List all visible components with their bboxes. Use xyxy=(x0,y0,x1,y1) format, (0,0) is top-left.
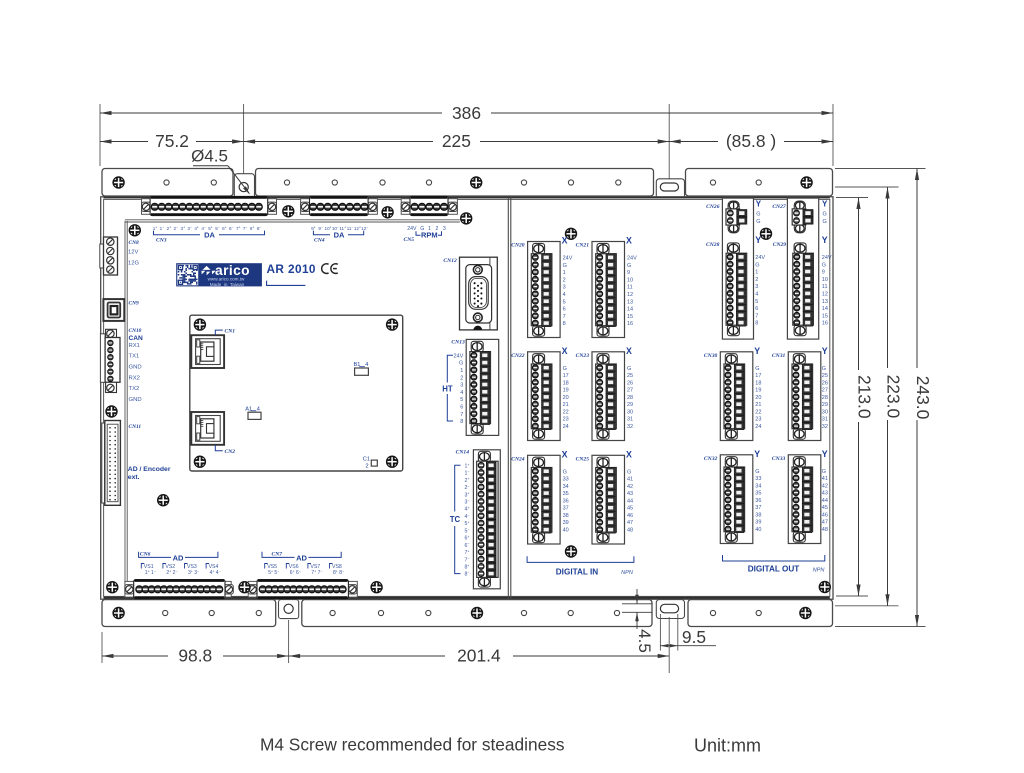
svg-text:CN12: CN12 xyxy=(443,258,457,264)
svg-text:39: 39 xyxy=(755,520,761,526)
svg-text:21: 21 xyxy=(755,402,761,408)
svg-text:G: G xyxy=(755,262,759,268)
svg-text:CN30: CN30 xyxy=(704,353,718,359)
svg-text:213.0: 213.0 xyxy=(855,375,875,419)
svg-text:DA: DA xyxy=(204,230,215,239)
svg-text:Y: Y xyxy=(822,346,828,356)
svg-text:B1: B1 xyxy=(354,362,361,368)
svg-text:CN5: CN5 xyxy=(404,237,415,243)
svg-text:7: 7 xyxy=(755,313,758,319)
svg-text:32: 32 xyxy=(627,424,633,430)
svg-text:C1: C1 xyxy=(363,456,370,462)
svg-text:2: 2 xyxy=(366,463,369,469)
svg-text:NPN: NPN xyxy=(621,570,634,576)
svg-text:26: 26 xyxy=(822,380,828,386)
svg-text:30: 30 xyxy=(822,409,828,415)
svg-text:Y: Y xyxy=(754,449,760,459)
svg-text:98.8: 98.8 xyxy=(178,646,212,666)
svg-text:17: 17 xyxy=(755,373,761,379)
svg-text:Y: Y xyxy=(755,235,761,245)
svg-text:225: 225 xyxy=(442,131,471,151)
svg-text:35: 35 xyxy=(755,491,761,497)
svg-text:43: 43 xyxy=(822,491,828,497)
svg-text:201.4: 201.4 xyxy=(457,646,501,666)
svg-text:GND: GND xyxy=(129,397,142,403)
svg-text:36: 36 xyxy=(755,498,761,504)
svg-text:15: 15 xyxy=(627,314,633,320)
svg-text:7: 7 xyxy=(563,314,566,320)
svg-text:31: 31 xyxy=(822,417,828,423)
svg-text:36: 36 xyxy=(563,498,569,504)
svg-text:22: 22 xyxy=(755,409,761,415)
svg-text:24: 24 xyxy=(563,424,569,430)
svg-text:CN11: CN11 xyxy=(129,424,142,430)
svg-text:CN29: CN29 xyxy=(773,242,787,248)
svg-text:9: 9 xyxy=(822,270,825,276)
svg-text:29: 29 xyxy=(627,402,633,408)
svg-text:20: 20 xyxy=(755,395,761,401)
svg-text:26: 26 xyxy=(627,380,633,386)
svg-text:16: 16 xyxy=(822,321,828,327)
svg-text:CAN: CAN xyxy=(129,335,144,342)
svg-text:CN22: CN22 xyxy=(511,353,525,359)
svg-text:6: 6 xyxy=(563,307,566,313)
svg-text:14: 14 xyxy=(822,306,828,312)
svg-text:3: 3 xyxy=(755,284,758,290)
svg-text:18: 18 xyxy=(755,380,761,386)
svg-text:47: 47 xyxy=(627,520,633,526)
svg-text:X: X xyxy=(562,236,568,246)
svg-text:4: 4 xyxy=(563,292,566,298)
svg-text:24V: 24V xyxy=(407,226,417,232)
svg-text:37: 37 xyxy=(755,505,761,511)
svg-text:41: 41 xyxy=(627,477,633,483)
svg-text:223.0: 223.0 xyxy=(884,375,904,419)
svg-text:CN23: CN23 xyxy=(576,353,590,359)
svg-text:CN28: CN28 xyxy=(706,242,720,248)
svg-text:38: 38 xyxy=(755,512,761,518)
svg-text:AD: AD xyxy=(173,553,184,562)
svg-text:27: 27 xyxy=(627,388,633,394)
svg-text:34: 34 xyxy=(755,483,761,489)
svg-text:9: 9 xyxy=(627,270,630,276)
svg-text:G: G xyxy=(563,366,567,372)
svg-text:6: 6 xyxy=(460,405,463,411)
svg-text:47: 47 xyxy=(822,520,828,526)
svg-text:Y: Y xyxy=(754,346,760,356)
svg-text:X: X xyxy=(626,236,632,246)
svg-text:NPN: NPN xyxy=(813,568,826,574)
svg-text:14: 14 xyxy=(627,307,633,313)
svg-text:1: 1 xyxy=(563,270,566,276)
svg-text:X: X xyxy=(562,346,568,356)
svg-text:23: 23 xyxy=(755,417,761,423)
svg-text:5: 5 xyxy=(460,397,463,403)
svg-text:23: 23 xyxy=(563,417,569,423)
svg-text:12V: 12V xyxy=(128,250,138,256)
svg-text:(85.8 ): (85.8 ) xyxy=(726,131,776,151)
svg-text:TC: TC xyxy=(450,515,461,524)
svg-text:46: 46 xyxy=(822,512,828,518)
svg-text:386: 386 xyxy=(452,103,481,123)
svg-text:75.2: 75.2 xyxy=(155,131,189,151)
svg-text:32: 32 xyxy=(822,424,828,430)
svg-text:12G: 12G xyxy=(128,261,139,267)
svg-text:1: 1 xyxy=(460,368,463,374)
svg-text:CN10: CN10 xyxy=(129,328,142,334)
svg-text:29: 29 xyxy=(822,402,828,408)
svg-text:CN13: CN13 xyxy=(451,340,465,346)
svg-text:CN31: CN31 xyxy=(772,353,786,359)
svg-text:2: 2 xyxy=(563,277,566,283)
svg-text:DIGITAL OUT: DIGITAL OUT xyxy=(748,565,800,574)
svg-text:AD: AD xyxy=(296,553,307,562)
svg-text:CN14: CN14 xyxy=(456,449,470,455)
svg-text:48: 48 xyxy=(627,527,633,533)
svg-text:24V: 24V xyxy=(563,256,573,262)
svg-text:Y: Y xyxy=(822,200,828,209)
svg-text:24V: 24V xyxy=(454,353,464,359)
svg-text:17: 17 xyxy=(563,373,569,379)
svg-text:3: 3 xyxy=(443,226,446,232)
svg-text:Ø4.5: Ø4.5 xyxy=(191,147,228,166)
svg-text:CN24: CN24 xyxy=(511,456,525,462)
svg-text:35: 35 xyxy=(563,491,569,497)
svg-text:6: 6 xyxy=(755,306,758,312)
svg-text:G: G xyxy=(822,469,826,475)
svg-text:DA: DA xyxy=(334,230,345,239)
svg-text:G: G xyxy=(459,361,463,367)
svg-text:33: 33 xyxy=(563,477,569,483)
svg-text:G: G xyxy=(822,262,826,268)
svg-text:48: 48 xyxy=(822,527,828,533)
svg-text:24V: 24V xyxy=(822,255,832,261)
svg-text:Unit:mm: Unit:mm xyxy=(694,736,761,756)
svg-text:46: 46 xyxy=(627,513,633,519)
svg-text:TX2: TX2 xyxy=(129,386,140,392)
svg-text:G: G xyxy=(756,219,760,225)
svg-text:12: 12 xyxy=(822,292,828,298)
svg-text:24V: 24V xyxy=(627,256,637,262)
svg-text:45: 45 xyxy=(822,505,828,511)
svg-text:RX2: RX2 xyxy=(129,375,140,381)
svg-text:TX1: TX1 xyxy=(129,354,140,360)
svg-text:CN25: CN25 xyxy=(576,456,590,462)
svg-text:G: G xyxy=(627,366,631,372)
svg-text:25: 25 xyxy=(822,373,828,379)
svg-text:G: G xyxy=(563,469,567,475)
svg-text:CN7: CN7 xyxy=(272,552,283,558)
svg-text:11: 11 xyxy=(627,285,633,291)
svg-text:8: 8 xyxy=(755,321,758,327)
svg-text:www.arico.com.tw: www.arico.com.tw xyxy=(208,277,245,282)
svg-text:19: 19 xyxy=(755,388,761,394)
svg-text:CN33: CN33 xyxy=(772,456,786,462)
svg-text:20: 20 xyxy=(563,395,569,401)
svg-text:G: G xyxy=(823,219,827,225)
svg-text:GND: GND xyxy=(129,365,142,371)
svg-text:41: 41 xyxy=(822,476,828,482)
svg-text:3: 3 xyxy=(460,383,463,389)
svg-text:CN8: CN8 xyxy=(129,240,139,246)
svg-text:X: X xyxy=(626,346,632,356)
svg-text:Y: Y xyxy=(822,449,828,459)
svg-text:ext.: ext. xyxy=(128,474,140,481)
svg-text:4: 4 xyxy=(365,362,368,368)
svg-text:33: 33 xyxy=(755,476,761,482)
svg-text:43: 43 xyxy=(627,491,633,497)
svg-text:8: 8 xyxy=(460,419,463,425)
svg-text:X: X xyxy=(562,450,568,460)
svg-text:4: 4 xyxy=(755,292,758,298)
svg-text:RX1: RX1 xyxy=(129,343,140,349)
svg-text:37: 37 xyxy=(563,506,569,512)
svg-text:39: 39 xyxy=(563,520,569,526)
svg-text:28: 28 xyxy=(822,395,828,401)
svg-text:30: 30 xyxy=(627,409,633,415)
svg-text:34: 34 xyxy=(563,484,569,490)
svg-text:CN32: CN32 xyxy=(704,456,718,462)
svg-text:2: 2 xyxy=(460,375,463,381)
svg-text:12: 12 xyxy=(627,292,633,298)
svg-text:8: 8 xyxy=(563,321,566,327)
svg-text:44: 44 xyxy=(627,498,633,504)
svg-text:9.5: 9.5 xyxy=(682,627,706,647)
svg-text:15: 15 xyxy=(822,313,828,319)
svg-text:25: 25 xyxy=(627,373,633,379)
svg-text:CN26: CN26 xyxy=(706,204,720,210)
svg-text:10: 10 xyxy=(822,277,828,283)
svg-text:40: 40 xyxy=(755,527,761,533)
svg-text:CN20: CN20 xyxy=(511,243,525,249)
svg-text:CN4: CN4 xyxy=(314,237,325,243)
svg-text:11: 11 xyxy=(822,284,828,290)
svg-text:CN9: CN9 xyxy=(129,301,139,307)
svg-text:16: 16 xyxy=(627,321,633,327)
svg-text:13: 13 xyxy=(627,299,633,305)
svg-text:G: G xyxy=(755,469,759,475)
svg-text:31: 31 xyxy=(627,417,633,423)
svg-text:19: 19 xyxy=(563,388,569,394)
svg-text:4.5: 4.5 xyxy=(635,629,654,653)
svg-text:AD / Encoder: AD / Encoder xyxy=(128,466,171,473)
svg-text:18: 18 xyxy=(563,380,569,386)
svg-text:Y: Y xyxy=(756,200,762,209)
svg-text:M4 Screw recommended for stead: M4 Screw recommended for steadiness xyxy=(260,735,565,755)
svg-text:CN2: CN2 xyxy=(225,449,236,455)
svg-text:X: X xyxy=(626,450,632,460)
svg-text:CN3: CN3 xyxy=(156,237,167,243)
svg-text:CN1: CN1 xyxy=(225,329,236,335)
svg-text:38: 38 xyxy=(563,513,569,519)
svg-text:G: G xyxy=(627,469,631,475)
svg-text:24: 24 xyxy=(755,424,761,430)
svg-text:44: 44 xyxy=(822,498,828,504)
svg-text:A1: A1 xyxy=(245,406,252,412)
svg-text:45: 45 xyxy=(627,506,633,512)
svg-text:4: 4 xyxy=(257,406,260,412)
svg-text:AR 2010: AR 2010 xyxy=(267,262,316,276)
svg-text:G: G xyxy=(756,212,760,218)
svg-text:2: 2 xyxy=(755,277,758,283)
svg-text:CN6: CN6 xyxy=(140,552,151,558)
svg-text:5: 5 xyxy=(563,299,566,305)
svg-text:G: G xyxy=(563,263,567,269)
svg-text:CN27: CN27 xyxy=(772,204,786,210)
svg-text:RPM: RPM xyxy=(421,231,438,240)
svg-text:7: 7 xyxy=(460,412,463,418)
svg-text:5: 5 xyxy=(755,299,758,305)
svg-text:10: 10 xyxy=(627,277,633,283)
svg-text:3: 3 xyxy=(563,285,566,291)
svg-text:DIGITAL IN: DIGITAL IN xyxy=(556,568,599,577)
svg-text:HT: HT xyxy=(442,384,453,393)
svg-text:Made in Taiwan: Made in Taiwan xyxy=(210,282,245,287)
svg-text:G: G xyxy=(755,366,759,372)
svg-text:40: 40 xyxy=(563,527,569,533)
svg-text:G: G xyxy=(823,212,827,218)
svg-text:24V: 24V xyxy=(755,255,765,261)
svg-text:22: 22 xyxy=(563,409,569,415)
svg-text:4: 4 xyxy=(460,390,463,396)
svg-text:42: 42 xyxy=(627,484,633,490)
svg-text:1: 1 xyxy=(755,270,758,276)
svg-text:243.0: 243.0 xyxy=(913,376,933,420)
svg-text:13: 13 xyxy=(822,299,828,305)
svg-text:27: 27 xyxy=(822,388,828,394)
svg-text:CN21: CN21 xyxy=(576,243,590,249)
svg-text:42: 42 xyxy=(822,483,828,489)
svg-text:Y: Y xyxy=(822,235,828,245)
svg-text:28: 28 xyxy=(627,395,633,401)
svg-text:G: G xyxy=(627,263,631,269)
svg-text:G: G xyxy=(822,366,826,372)
svg-text:21: 21 xyxy=(563,402,569,408)
